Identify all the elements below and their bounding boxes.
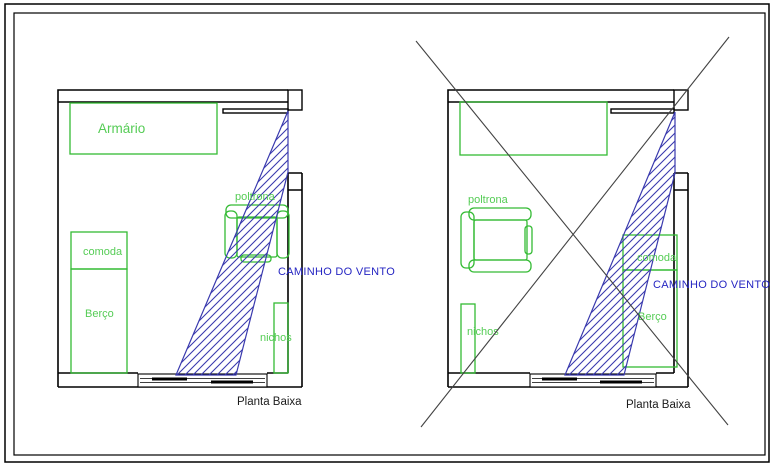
wind-path-hatch xyxy=(565,112,675,375)
nichos-outline xyxy=(461,304,475,373)
comoda-label: comoda xyxy=(637,252,677,264)
right-plan: poltrona comoda Berço nichos CAMINHO DO … xyxy=(416,37,770,427)
armario-label: Armário xyxy=(98,121,145,136)
berco-label: Berço xyxy=(638,311,667,323)
nichos-label: nichos xyxy=(260,332,292,344)
window-symbol xyxy=(530,374,656,387)
berco-outline xyxy=(71,269,127,373)
armario-outline xyxy=(460,102,607,155)
wind-path-label: CAMINHO DO VENTO xyxy=(278,266,395,278)
door-jamb-top-icon xyxy=(288,90,302,110)
window-symbol xyxy=(138,374,267,387)
poltrona-label: poltrona xyxy=(468,194,509,206)
floor-plan-drawing: Armário comoda Berço poltrona nichos CAM… xyxy=(0,0,774,468)
nichos-label: nichos xyxy=(467,326,499,338)
cad-drawing-canvas: Armário comoda Berço poltrona nichos CAM… xyxy=(0,0,774,468)
plan-caption: Planta Baixa xyxy=(237,396,302,408)
open-door-leaf-icon xyxy=(223,109,288,113)
open-door-leaf-icon xyxy=(611,109,674,113)
door-jamb-top-icon xyxy=(674,90,688,110)
armchair-icon xyxy=(461,208,532,272)
wind-path-label: CAMINHO DO VENTO xyxy=(653,279,770,291)
poltrona-label: poltrona xyxy=(235,191,276,203)
berco-label: Berço xyxy=(85,308,114,320)
plan-caption: Planta Baixa xyxy=(626,399,691,411)
left-plan: Armário comoda Berço poltrona nichos CAM… xyxy=(58,90,395,408)
comoda-label: comoda xyxy=(83,246,123,258)
